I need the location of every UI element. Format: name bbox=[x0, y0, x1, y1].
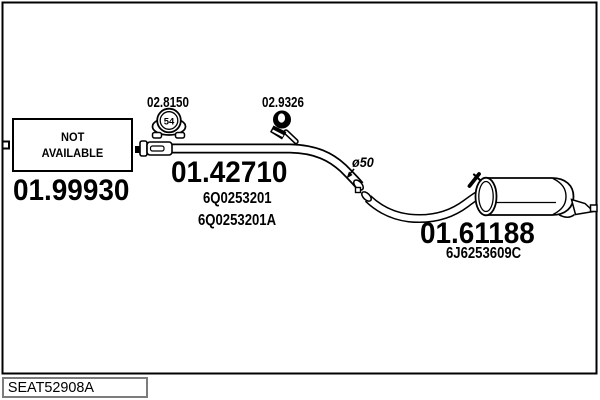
not-available-line2: AVAILABLE bbox=[42, 147, 104, 160]
part-number-mid-pipe: 01.42710 bbox=[171, 158, 287, 188]
footer-code: SEAT52908A bbox=[4, 380, 94, 395]
part-number-front-section: 01.99930 bbox=[13, 176, 129, 206]
not-available-box: NOT AVAILABLE bbox=[12, 118, 133, 172]
hanger-clamp-icon bbox=[270, 111, 296, 142]
footer-code-box: SEAT52908A bbox=[2, 377, 148, 398]
rear-muffler-drawing bbox=[356, 174, 574, 219]
oem-ref-rear-muffler: 6J6253609C bbox=[446, 246, 521, 262]
rubber-mount-badge: 54 bbox=[164, 117, 175, 128]
pipe-diameter-label: ø50 bbox=[352, 155, 374, 169]
exhaust-parts-diagram: 54 bbox=[0, 0, 600, 400]
not-available-line1: NOT bbox=[61, 131, 84, 144]
rubber-mount-icon: 54 bbox=[153, 109, 186, 138]
part-number-clamp-rear: 02.9326 bbox=[262, 96, 304, 111]
left-connector-square bbox=[3, 142, 10, 149]
part-number-clamp-front: 02.8150 bbox=[147, 96, 189, 111]
oem-ref-mid-pipe-1: 6Q0253201 bbox=[203, 191, 272, 207]
oem-ref-mid-pipe-2: 6Q0253201A bbox=[198, 213, 276, 229]
